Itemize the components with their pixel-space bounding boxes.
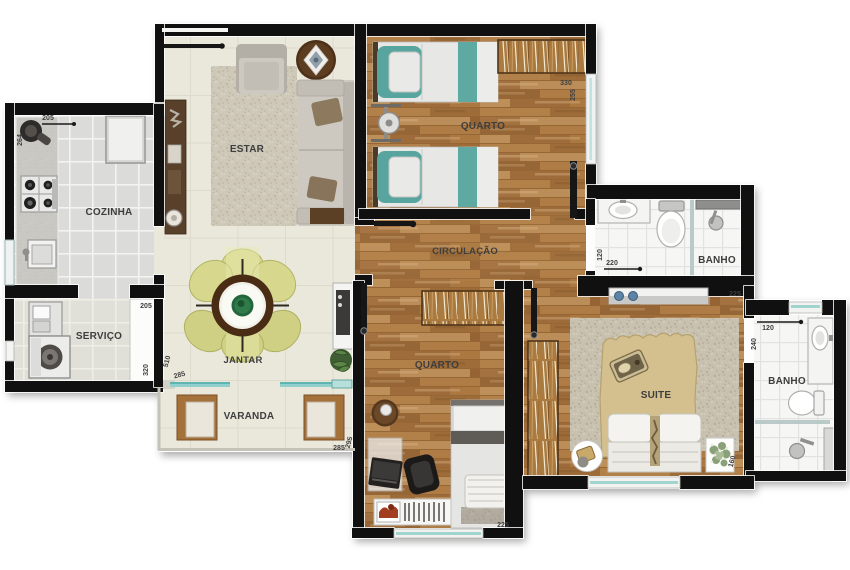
svg-text:SUITE: SUITE (641, 390, 672, 401)
svg-text:ESTAR: ESTAR (230, 144, 265, 155)
svg-text:205: 205 (42, 115, 54, 122)
svg-text:120: 120 (762, 325, 774, 332)
svg-text:330: 330 (560, 80, 572, 87)
svg-text:BANHO: BANHO (698, 255, 736, 266)
svg-text:QUARTO: QUARTO (415, 360, 459, 371)
svg-text:CIRCULAÇÃO: CIRCULAÇÃO (432, 246, 498, 257)
svg-text:QUARTO: QUARTO (461, 121, 505, 132)
svg-text:225: 225 (729, 291, 741, 298)
svg-text:225: 225 (497, 522, 509, 529)
svg-text:205: 205 (140, 303, 152, 310)
svg-text:SERVIÇO: SERVIÇO (76, 331, 122, 342)
svg-text:255: 255 (570, 89, 577, 101)
svg-text:264: 264 (17, 134, 24, 146)
svg-text:120: 120 (597, 249, 604, 261)
svg-text:VARANDA: VARANDA (224, 411, 275, 422)
svg-text:COZINHA: COZINHA (86, 207, 133, 218)
svg-text:JANTAR: JANTAR (223, 355, 262, 366)
svg-text:220: 220 (606, 260, 618, 267)
svg-text:285: 285 (333, 445, 345, 452)
svg-text:320: 320 (143, 364, 150, 376)
svg-text:240: 240 (751, 338, 758, 350)
svg-text:BANHO: BANHO (768, 376, 806, 387)
